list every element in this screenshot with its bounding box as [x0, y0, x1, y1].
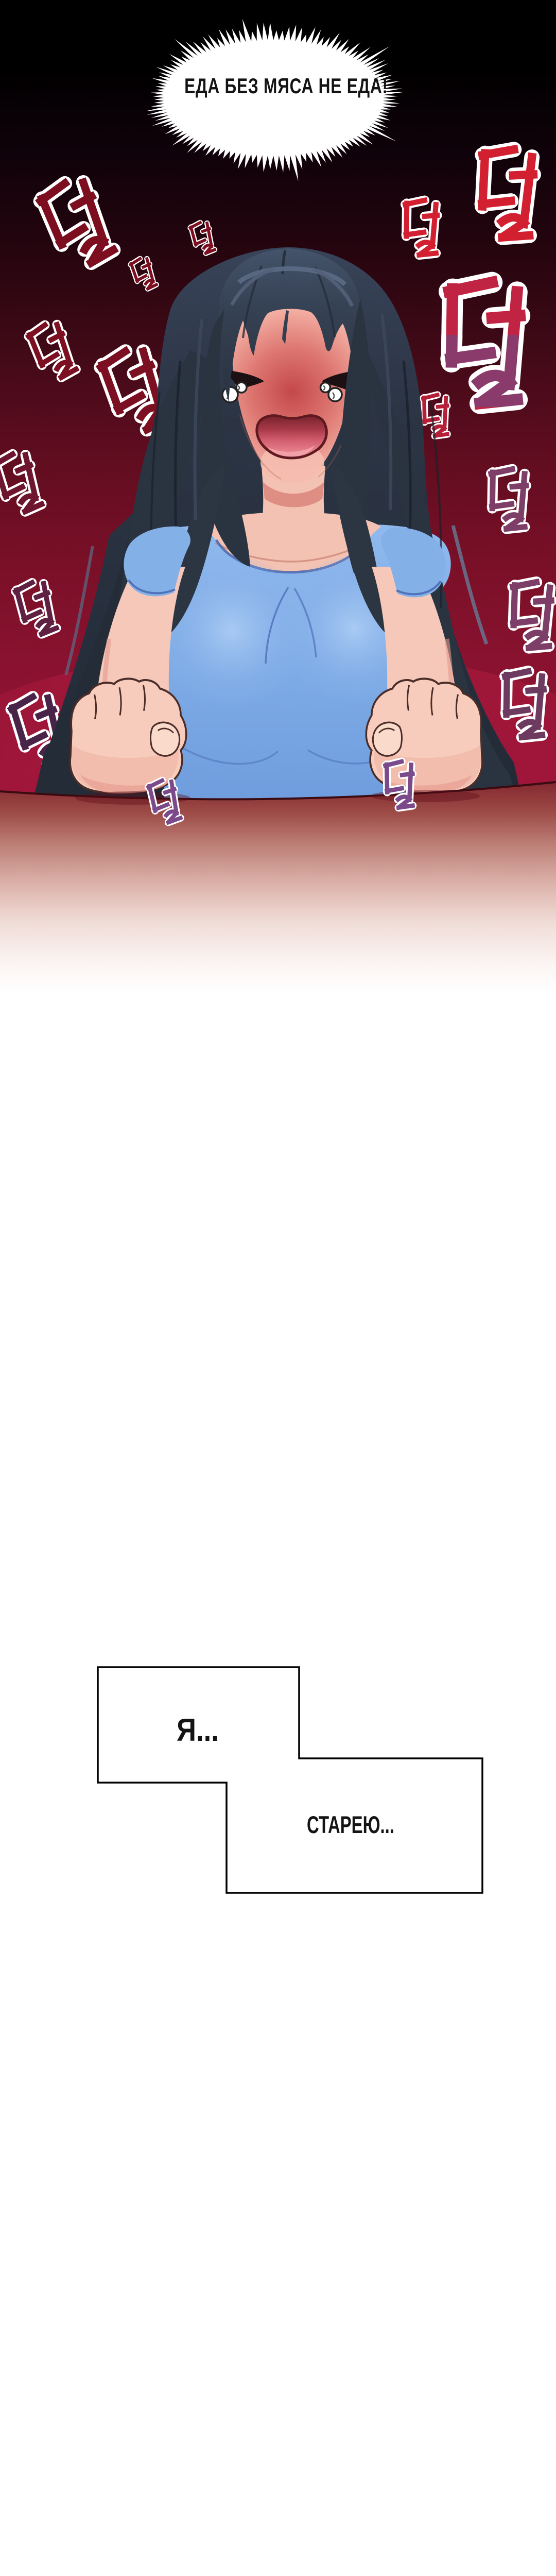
- svg-text:СТАРЕЮ...: СТАРЕЮ...: [307, 1811, 394, 1838]
- svg-text:Я...: Я...: [177, 1713, 219, 1748]
- svg-text:ЕДА БЕЗ МЯСА НЕ ЕДА!: ЕДА БЕЗ МЯСА НЕ ЕДА!: [184, 74, 388, 98]
